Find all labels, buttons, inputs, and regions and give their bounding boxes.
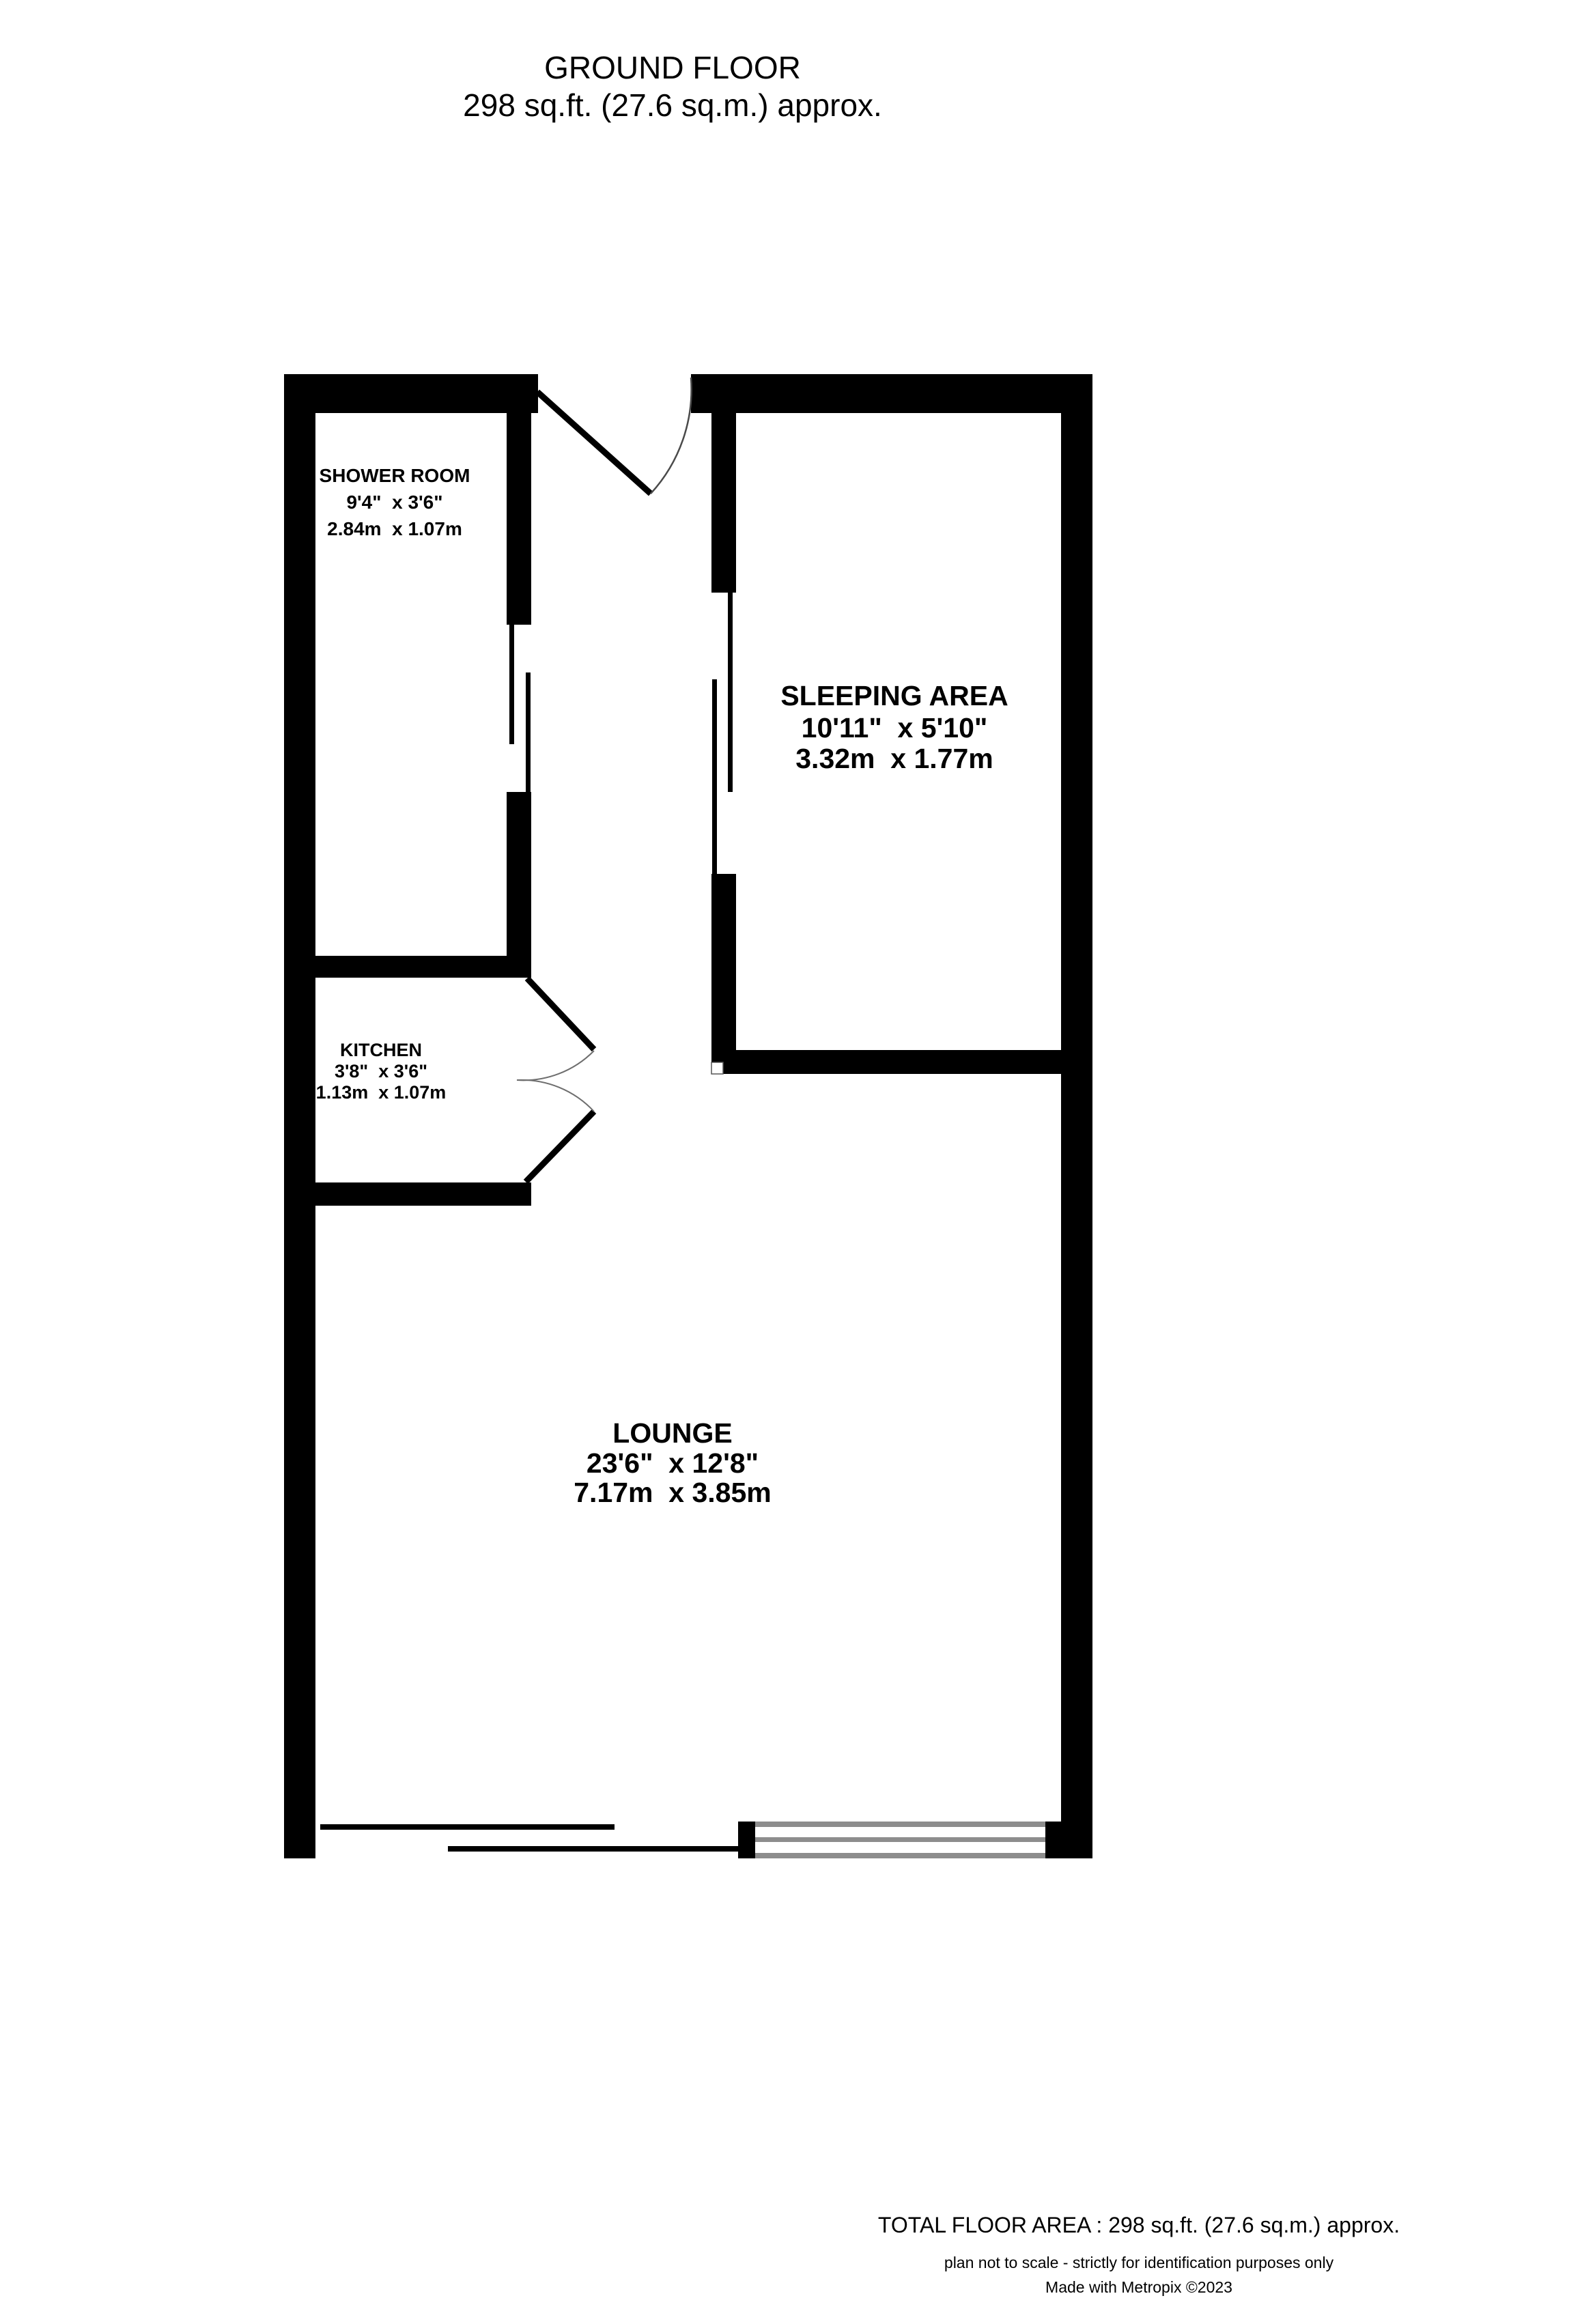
wall-shower-right-lower [507, 792, 531, 956]
room-label-shower-room: SHOWER ROOM 9'4" x 3'6" 2.84m x 1.07m [320, 465, 470, 539]
footer-credit: Made with Metropix ©2023 [1045, 2278, 1232, 2296]
kitchen-door-leaf-top [527, 978, 594, 1049]
window-line-top [755, 1822, 1045, 1827]
kitchen-size-imperial: 3'8" x 3'6" [335, 1061, 427, 1081]
wall-sleeping-top [691, 374, 1092, 413]
footer-total-area: TOTAL FLOOR AREA : 298 sq.ft. (27.6 sq.m… [878, 2213, 1400, 2237]
wall-shower-right-upper [507, 413, 531, 625]
floorplan-drawing: GROUND FLOOR 298 sq.ft. (27.6 sq.m.) app… [0, 0, 1595, 2324]
wall-outer-right [1061, 374, 1092, 1858]
entry-door-arc [651, 378, 692, 494]
wall-sleeping-left-lower [711, 874, 736, 1050]
floorplan-page: GROUND FLOOR 298 sq.ft. (27.6 sq.m.) app… [0, 0, 1595, 2324]
sleeping-area-size-metric: 3.32m x 1.77m [795, 743, 993, 774]
wall-kitchen-bottom [284, 1182, 531, 1206]
opening-line-shower-2 [526, 672, 531, 792]
opening-line-shower-1 [509, 625, 514, 744]
wall-shower-top [284, 374, 538, 413]
opening-line-sleeping-2 [712, 679, 717, 874]
sleeping-area-name: SLEEPING AREA [780, 680, 1008, 711]
room-label-sleeping-area: SLEEPING AREA 10'11" x 5'10" 3.32m x 1.7… [780, 680, 1008, 774]
kitchen-door-arc-top [517, 1051, 594, 1080]
lounge-size-imperial: 23'6" x 12'8" [587, 1447, 759, 1479]
page-title: GROUND FLOOR [544, 50, 801, 85]
window-line-bottom [755, 1853, 1045, 1858]
wall-sleeping-bottom-notch [711, 1062, 723, 1074]
room-label-kitchen: KITCHEN 3'8" x 3'6" 1.13m x 1.07m [316, 1040, 447, 1103]
kitchen-door-arc-bottom [517, 1080, 594, 1111]
wall-outer-left [284, 374, 315, 1858]
window-line-middle [755, 1837, 1045, 1842]
page-subtitle: 298 sq.ft. (27.6 sq.m.) approx. [463, 87, 882, 123]
kitchen-name: KITCHEN [340, 1040, 422, 1060]
lounge-name: LOUNGE [612, 1417, 732, 1449]
shower-room-size-imperial: 9'4" x 3'6" [346, 492, 442, 513]
wall-sleeping-left-upper [711, 413, 736, 593]
shower-room-size-metric: 2.84m x 1.07m [327, 518, 462, 539]
sleeping-area-size-imperial: 10'11" x 5'10" [802, 712, 988, 743]
lounge-size-metric: 7.17m x 3.85m [574, 1477, 771, 1508]
window-left-jamb [738, 1822, 755, 1858]
opening-line-lounge-upper [320, 1824, 615, 1830]
wall-shower-kitchen-divider [284, 956, 531, 978]
shower-room-name: SHOWER ROOM [320, 465, 470, 486]
room-label-lounge: LOUNGE 23'6" x 12'8" 7.17m x 3.85m [574, 1417, 771, 1508]
kitchen-size-metric: 1.13m x 1.07m [316, 1082, 447, 1103]
opening-line-sleeping-1 [728, 593, 733, 792]
footer: TOTAL FLOOR AREA : 298 sq.ft. (27.6 sq.m… [878, 2213, 1400, 2296]
opening-line-lounge-lower [448, 1846, 743, 1852]
entry-door-leaf [537, 392, 651, 494]
wall-sleeping-bottom [711, 1050, 1092, 1074]
wall-bottom-right-corner [1045, 1822, 1092, 1858]
kitchen-door-leaf-bottom [526, 1111, 594, 1182]
footer-disclaimer: plan not to scale - strictly for identif… [944, 2254, 1334, 2271]
